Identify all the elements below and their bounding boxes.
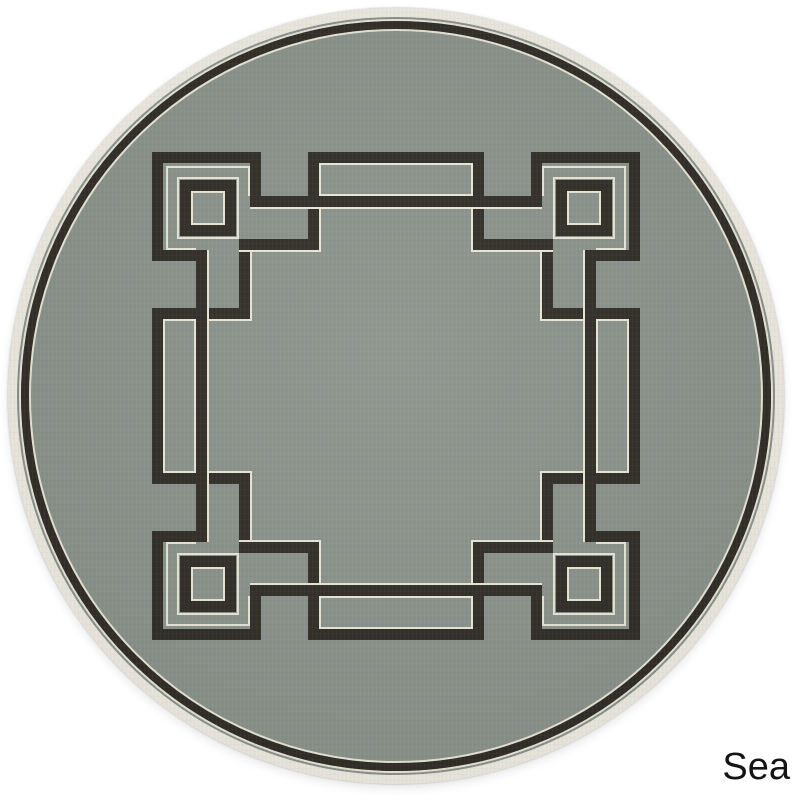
rug-fabric-texture: [8, 8, 784, 784]
colorway-label: Sea: [722, 748, 790, 786]
product-image-canvas: Sea: [0, 0, 800, 800]
